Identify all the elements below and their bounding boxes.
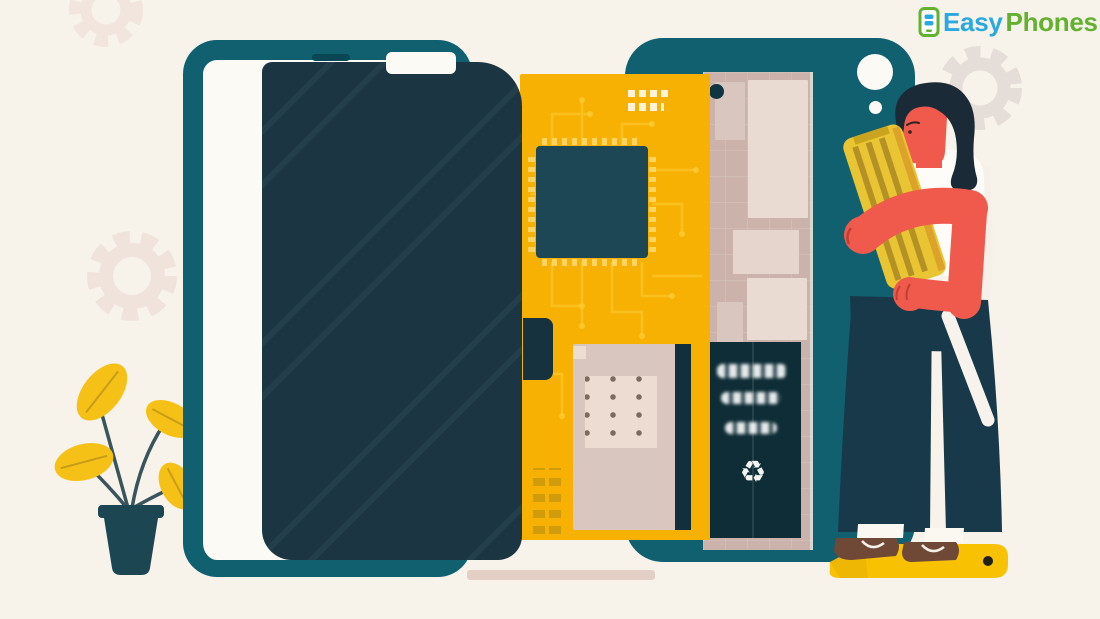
battery-label-text [721, 392, 781, 404]
gear-icon [78, 0, 134, 38]
frame-gap [386, 52, 456, 74]
battery-seam [752, 342, 754, 538]
camera-flash-hole [869, 101, 882, 114]
gear-icon [98, 242, 166, 310]
sim-corner-chip [573, 346, 586, 359]
pcb-print-text [628, 90, 668, 97]
screwdriver [948, 316, 988, 420]
plant-pot [98, 505, 164, 575]
recycle-icon: ♻ [740, 458, 767, 488]
earpiece-speaker-slot [312, 54, 350, 61]
battery-label-text [725, 422, 777, 434]
compartment-edge-highlight [810, 72, 813, 550]
logo-text-easy: Easy [943, 6, 1003, 38]
mat-dot [983, 556, 993, 566]
shoulder-cloth [944, 158, 993, 332]
internal-battery: ♻ [705, 342, 801, 538]
pcb-stamp-text [549, 468, 561, 534]
phone-screen-panel [262, 62, 522, 560]
internal-component [733, 230, 799, 274]
screw-icon [709, 84, 724, 99]
easyphones-logo[interactable]: EasyPhones [918, 6, 1098, 38]
sim-dark-stripe [675, 344, 691, 530]
plant-stems [88, 400, 172, 508]
pcb-print-text [628, 103, 664, 111]
back-cover-edge [467, 570, 655, 580]
internal-component [748, 80, 808, 218]
processor-chip [536, 146, 648, 258]
logo-text-phones: Phones [1006, 6, 1098, 38]
internal-component [717, 302, 743, 344]
ribbon-connector [523, 318, 553, 380]
sim-module [573, 344, 691, 530]
pcb-stamp-text [533, 468, 545, 534]
circuit-board [520, 74, 710, 540]
camera-hole [857, 54, 893, 90]
chip-pins [528, 152, 535, 252]
plant-leaves [50, 354, 203, 515]
gear-icon [948, 56, 1012, 120]
chip-pins [542, 259, 642, 266]
logo-phone-icon [918, 7, 940, 37]
chip-pins [649, 152, 656, 252]
neck [916, 150, 942, 168]
sim-contact-grid [585, 376, 657, 448]
internal-component [747, 278, 807, 340]
chip-pins [542, 138, 642, 145]
internal-compartment: ♻ [703, 72, 813, 550]
repair-illustration-canvas: ♻ [0, 0, 1100, 619]
